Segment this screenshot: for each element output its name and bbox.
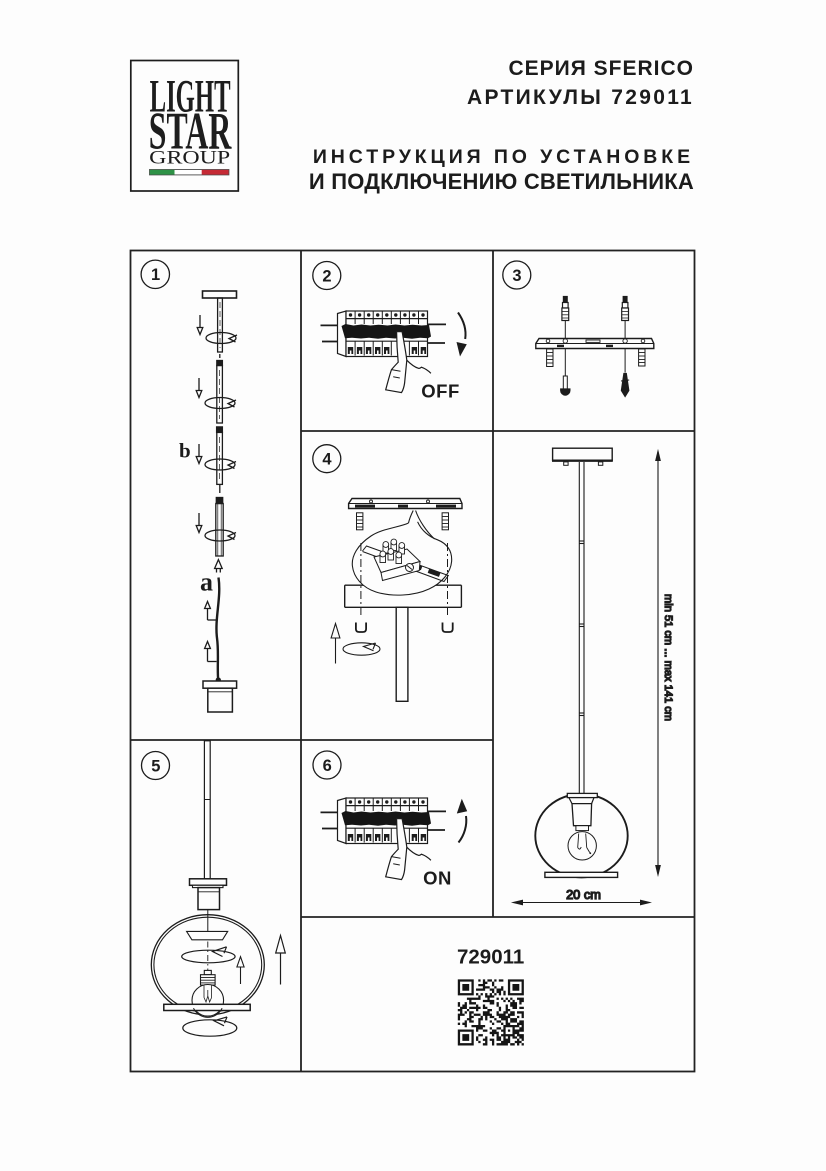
svg-text:OFF: OFF	[421, 381, 460, 402]
svg-text:2: 2	[322, 267, 331, 285]
svg-text:a: a	[200, 568, 213, 597]
svg-text:729011: 729011	[457, 946, 524, 969]
svg-text:1: 1	[151, 266, 160, 284]
svg-text:20 cm: 20 cm	[566, 887, 601, 902]
svg-text:ON: ON	[423, 868, 452, 889]
svg-text:min 51 cm ... max 141 cm: min 51 cm ... max 141 cm	[662, 594, 674, 721]
svg-text:5: 5	[151, 757, 160, 775]
svg-text:4: 4	[322, 451, 332, 469]
svg-text:b: b	[179, 439, 191, 463]
svg-text:3: 3	[512, 267, 521, 285]
svg-text:6: 6	[323, 757, 332, 775]
